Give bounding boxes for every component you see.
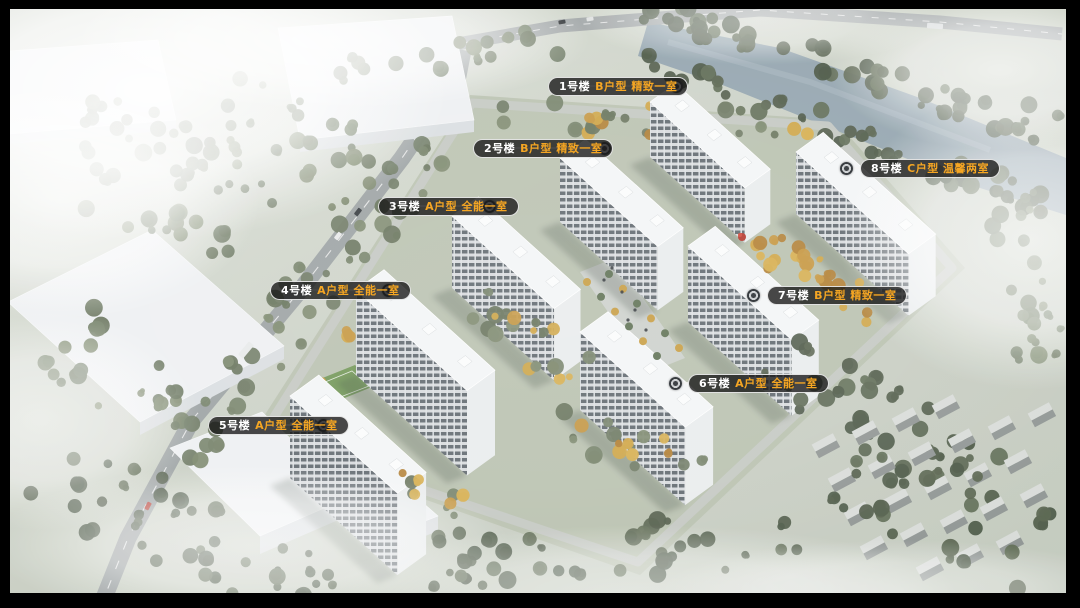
unit-type-label: B户型 精致一室	[595, 81, 677, 92]
unit-type-label: B户型 精致一室	[814, 290, 896, 301]
building-label-3[interactable]: 3号楼A户型 全能一室	[378, 197, 519, 216]
building-label-5[interactable]: 5号楼A户型 全能一室	[208, 416, 349, 435]
unit-type-label: A户型 全能一室	[317, 285, 399, 296]
building-label-2[interactable]: 2号楼B户型 精致一室	[473, 139, 613, 158]
building-number: 8号楼	[871, 163, 902, 174]
building-label-1[interactable]: 1号楼B户型 精致一室	[548, 77, 688, 96]
rendering-frame: 1号楼B户型 精致一室2号楼B户型 精致一室3号楼A户型 全能一室4号楼A户型 …	[0, 0, 1080, 608]
building-label-7[interactable]: 7号楼B户型 精致一室	[767, 286, 907, 305]
building-number: 5号楼	[219, 420, 250, 431]
building-marker-8[interactable]	[840, 162, 853, 175]
building-label-6[interactable]: 6号楼A户型 全能一室	[688, 374, 829, 393]
unit-type-label: C户型 温馨两室	[907, 163, 989, 174]
building-label-4[interactable]: 4号楼A户型 全能一室	[270, 281, 411, 300]
unit-type-label: A户型 全能一室	[425, 201, 507, 212]
building-labels-layer: 1号楼B户型 精致一室2号楼B户型 精致一室3号楼A户型 全能一室4号楼A户型 …	[10, 9, 1066, 593]
building-marker-6[interactable]	[669, 377, 682, 390]
building-marker-7[interactable]	[747, 289, 760, 302]
building-number: 6号楼	[699, 378, 730, 389]
building-number: 3号楼	[389, 201, 420, 212]
building-number: 7号楼	[778, 290, 809, 301]
unit-type-label: A户型 全能一室	[255, 420, 337, 431]
unit-type-label: A户型 全能一室	[735, 378, 817, 389]
unit-type-label: B户型 精致一室	[520, 143, 602, 154]
building-number: 4号楼	[281, 285, 312, 296]
building-label-8[interactable]: 8号楼C户型 温馨两室	[860, 159, 1000, 178]
building-number: 1号楼	[559, 81, 590, 92]
building-number: 2号楼	[484, 143, 515, 154]
aerial-rendering-scene: 1号楼B户型 精致一室2号楼B户型 精致一室3号楼A户型 全能一室4号楼A户型 …	[10, 9, 1066, 593]
